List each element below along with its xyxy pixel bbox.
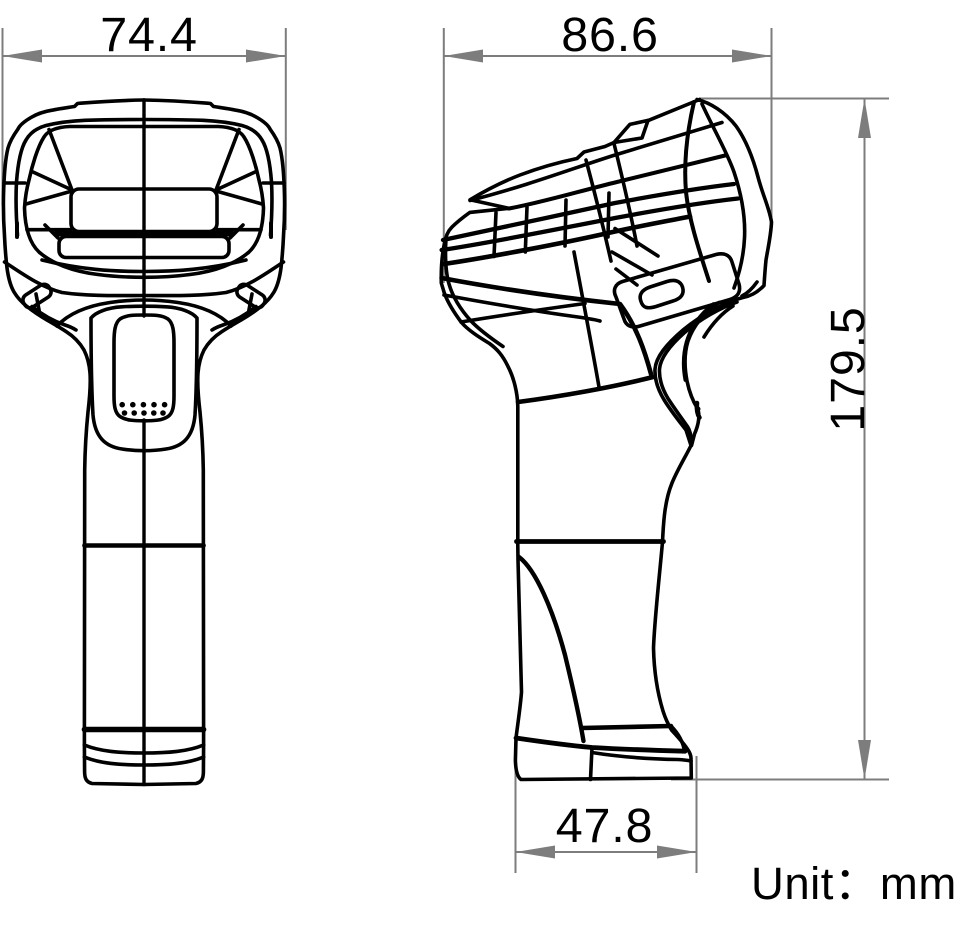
svg-text:179.5: 179.5 [821,306,875,431]
svg-text:86.6: 86.6 [561,8,659,62]
svg-text:Unit：mm: Unit：mm [751,858,957,909]
svg-text:47.8: 47.8 [556,799,654,853]
svg-text:74.4: 74.4 [100,8,198,62]
